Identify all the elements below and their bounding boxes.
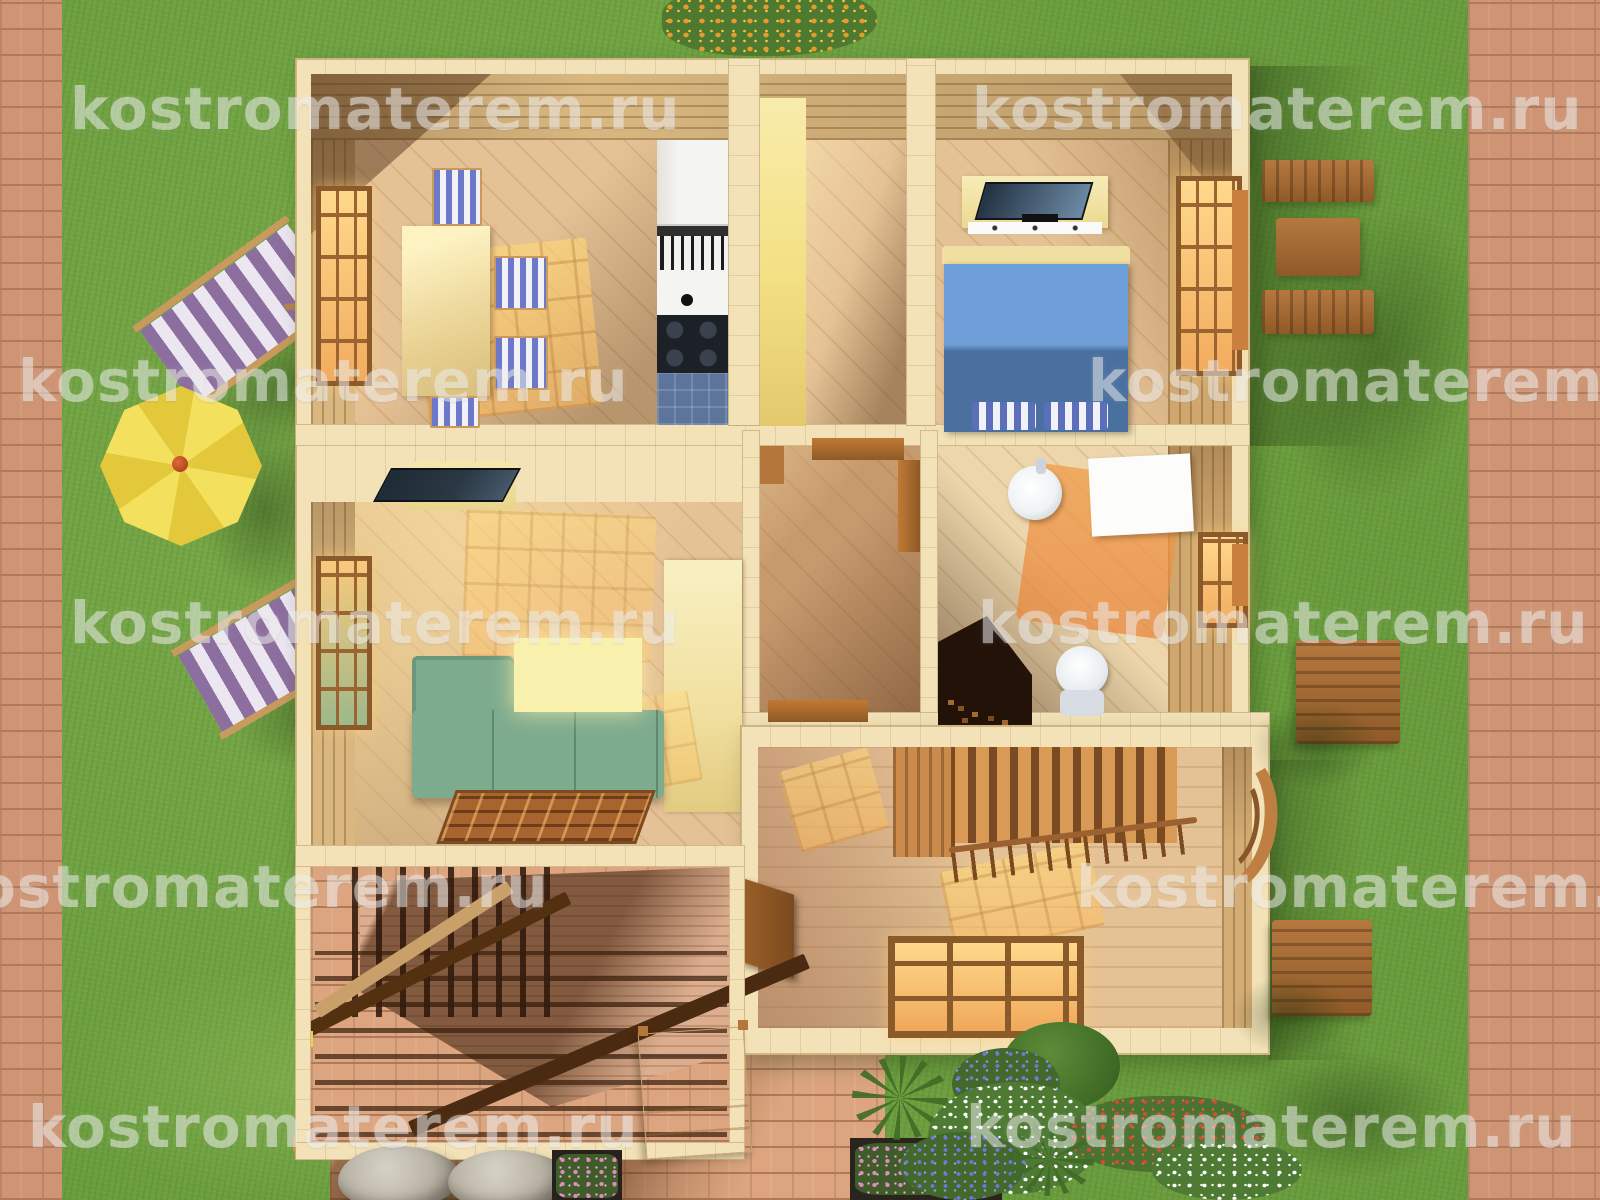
garden-bench [1262,160,1374,202]
bench-shadow [1250,700,1380,790]
watermark-text: kostromaterem.ru [70,594,681,652]
watermark-text: kostromaterem.ru [18,352,629,410]
tv-drawer [968,222,1102,234]
cooker-hood-vent [657,236,728,270]
watermark-text: kostromaterem.ru [1076,858,1600,916]
hall-door-trim-right [898,460,920,552]
watermark-text: kostromaterem.ru [966,1098,1577,1156]
firewood-scatter [948,700,954,705]
garden-bench [1262,290,1374,334]
bedroom-window-sill [1232,190,1248,350]
wall-hall-right [920,430,938,728]
bathroom-sink [1008,466,1062,520]
watermark-text: kostromaterem.ru [978,594,1589,652]
step-post [638,1026,648,1036]
watermark-text: kostromaterem.ru [70,80,681,138]
hall-door-trim-top [812,438,904,460]
cooker-hood-edge [657,226,728,236]
bed-pillow [972,402,1036,430]
shower-box [1088,453,1194,536]
sink-faucet [1036,458,1046,474]
kitchen-sink [657,270,728,315]
step-post [738,1020,748,1030]
parasol-finial [172,456,188,472]
wall-hall-left [742,430,760,728]
watermark-text: kostromaterem.ru [0,858,549,916]
faucet-dot [681,294,693,306]
flower-bush-orange [662,0,877,56]
garden-floorplan-scene: kostromaterem.ru kostromaterem.ru kostro… [0,0,1600,1200]
gas-stove [657,315,728,373]
hall-corner-trim [760,446,784,484]
watermark-text: kostromaterem.ru [972,80,1583,138]
refrigerator [657,140,728,226]
wall-kitchen-partition [728,58,760,426]
watermark-text: kostromaterem.ru [1088,352,1600,410]
kitchen-counter [657,373,728,425]
stair-landing [893,747,955,857]
bed-headboard [942,246,1130,264]
rug [436,790,656,844]
corridor-floor-shadow [806,140,906,426]
bench-shadow [1230,975,1350,1055]
dining-chair [494,256,548,310]
dining-chair [432,168,482,226]
sofa-seat [412,710,664,798]
living-tv-screen [373,468,521,502]
watermark-text: kostromaterem.ru [28,1098,639,1156]
garden-table [1276,218,1360,276]
entrance-steps [638,1026,753,1159]
hallway-floor-shadow [760,446,920,712]
toilet-tank [1060,690,1104,716]
sunlit-partition-face [760,98,806,426]
hall-door-threshold [768,700,868,722]
brick-path-left [0,0,62,1200]
tv-stand [1022,214,1058,222]
wall-bedroom-left [906,58,936,426]
